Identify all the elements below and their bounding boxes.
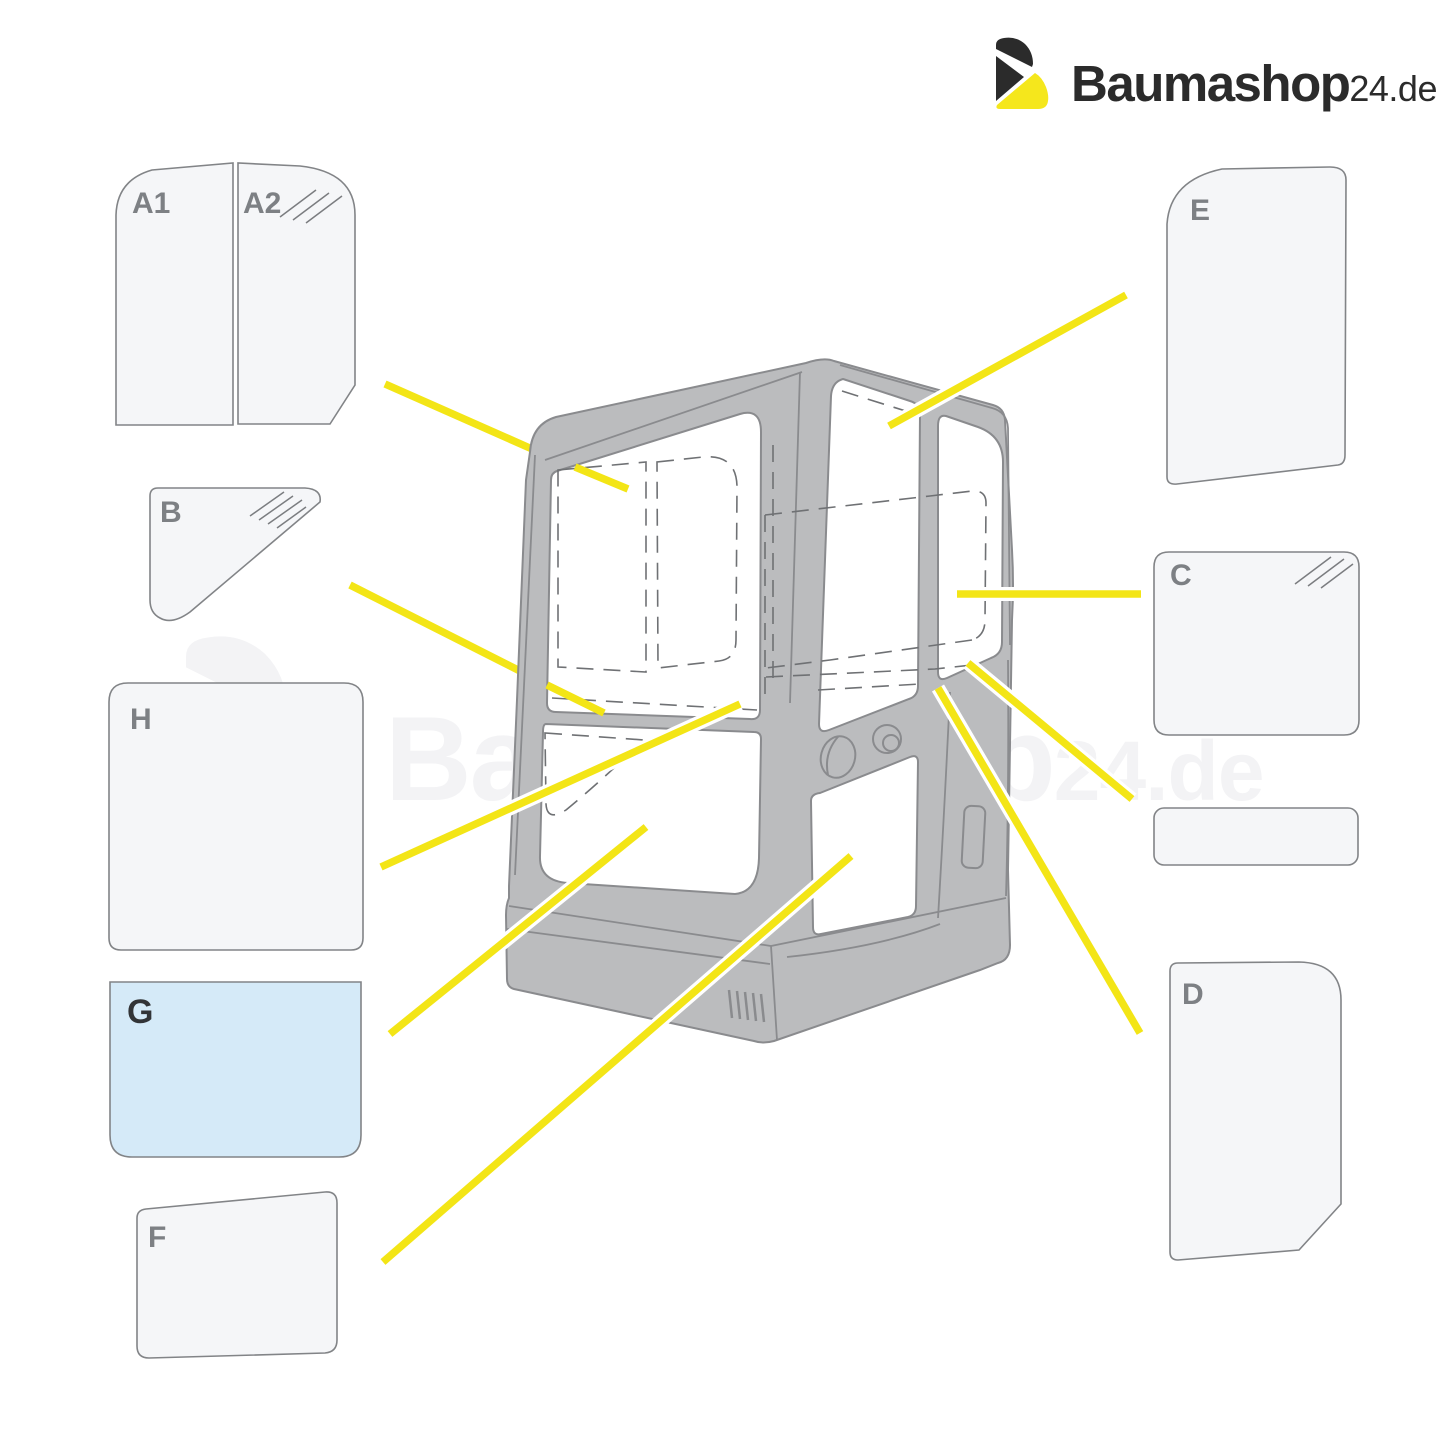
svg-text:C: C bbox=[1170, 559, 1192, 592]
svg-text:F: F bbox=[148, 1221, 166, 1254]
svg-text:B: B bbox=[160, 496, 182, 529]
svg-text:G: G bbox=[127, 993, 153, 1031]
svg-text:A1: A1 bbox=[132, 187, 170, 220]
svg-text:H: H bbox=[130, 703, 152, 736]
svg-text:A2: A2 bbox=[243, 187, 281, 220]
svg-text:E: E bbox=[1190, 194, 1210, 227]
svg-text:D: D bbox=[1182, 978, 1204, 1011]
